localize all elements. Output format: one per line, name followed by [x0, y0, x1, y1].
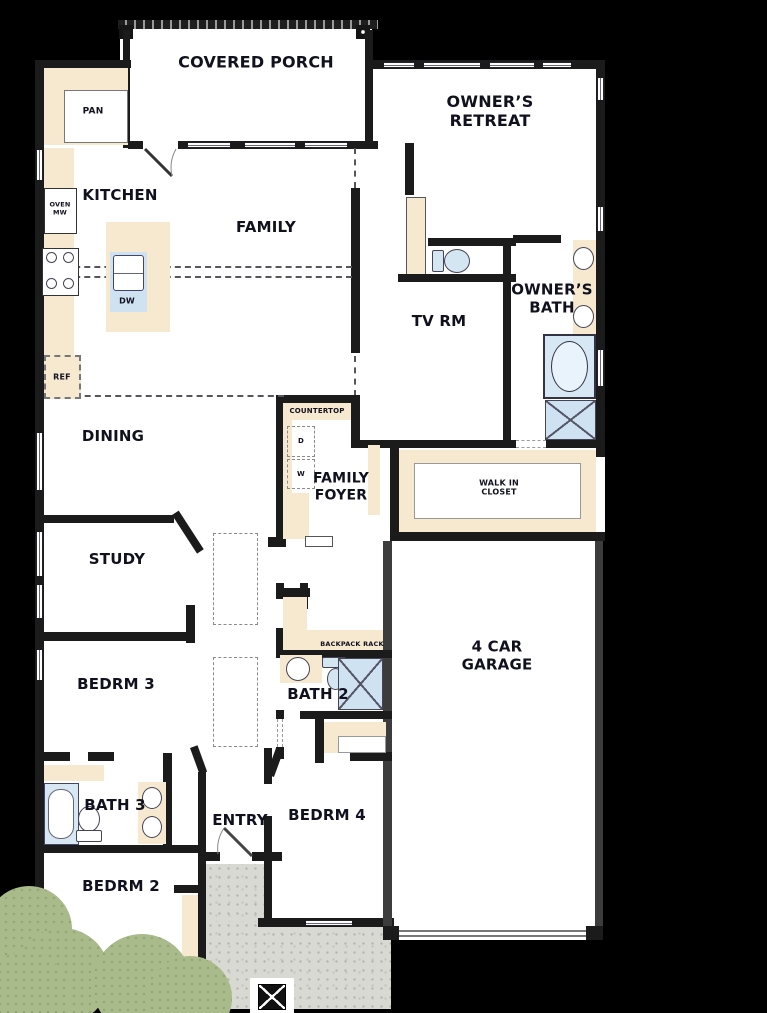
window [36, 650, 43, 680]
label-bath-2: BATH 2 [287, 686, 349, 704]
door-swing-icon [142, 146, 180, 184]
label-covered-porch: COVERED PORCH [178, 54, 334, 73]
burner-icon [46, 278, 57, 289]
label-bedrm-3: BEDRM 3 [77, 676, 155, 694]
wall-bedrm4-closet [315, 719, 324, 763]
wall-garage-corner [586, 926, 603, 940]
burner-icon [63, 252, 74, 263]
wall-bath2-bottom [300, 711, 392, 719]
wall-wic-left [390, 442, 399, 540]
wall-foyer-top [276, 395, 358, 403]
label-countertop: COUNTERTOP [289, 407, 344, 415]
bath3-shelf [44, 765, 104, 781]
wall-retreat-bath [513, 235, 561, 243]
label-owners-retreat: OWNER’S RETREAT [447, 93, 534, 131]
foyer-bench [283, 493, 309, 539]
wall-bedrm2-stub [174, 885, 198, 893]
ceiling-feature [213, 533, 258, 625]
wall-wic-top [546, 440, 605, 448]
wall-hall-right [276, 710, 284, 719]
tub-basin-icon [551, 341, 588, 392]
shower-icon [545, 400, 596, 440]
window [597, 207, 604, 231]
floor-plan: COVERED PORCH OWNER’S RETREAT KITCHEN FA… [0, 0, 767, 1013]
label-family: FAMILY [236, 219, 296, 237]
wall-counter-right [351, 395, 360, 445]
window [36, 150, 43, 180]
wall-fireplace [351, 188, 360, 353]
window [245, 142, 295, 148]
wall-bedrm3-top [40, 632, 190, 641]
cased-opening [277, 719, 283, 747]
window [36, 433, 43, 490]
porch-roof-edge [118, 20, 378, 29]
window [306, 920, 352, 926]
column-icon [258, 984, 286, 1010]
sink-icon [286, 657, 310, 681]
label-walk-in-closet: WALK IN CLOSET [479, 479, 519, 498]
burner-icon [63, 278, 74, 289]
window [36, 532, 43, 576]
wall-retreat-hall [405, 143, 414, 195]
label-garage: 4 CAR GARAGE [462, 638, 533, 673]
wall-wc-bottom [398, 274, 516, 282]
wall-bath3-bedrm2 [40, 845, 205, 853]
window [597, 350, 604, 386]
window [597, 78, 604, 100]
room-floor-garage [383, 538, 603, 940]
window [543, 62, 571, 68]
label-refrigerator: REF [53, 372, 71, 381]
label-backpack-rack: BACKPACK RACK [320, 641, 384, 649]
wall-bedrm2-right [198, 853, 206, 965]
wall-bedrm4-left [264, 816, 272, 920]
wall-right-exterior [596, 63, 605, 457]
ceiling-dash-line [44, 276, 352, 278]
label-pantry: PAN [83, 107, 104, 118]
wall-entry-left [198, 772, 206, 856]
backpack-counter [283, 597, 307, 650]
window [424, 62, 480, 68]
bedrm4-closet-floor [338, 736, 386, 753]
burner-icon [46, 252, 57, 263]
wall-bath3-top [88, 752, 114, 761]
wall-bath-tvrm [503, 246, 511, 442]
wall-hall-right [276, 747, 284, 759]
label-dining: DINING [82, 428, 144, 446]
label-bedrm-4: BEDRM 4 [288, 807, 366, 825]
wall-porch-right [365, 30, 373, 148]
label-bath-3: BATH 3 [84, 797, 146, 815]
label-tv-rm: TV RM [412, 313, 467, 331]
ceiling-feature [213, 657, 258, 747]
label-bedrm-2: BEDRM 2 [82, 878, 160, 896]
ceiling-dash-line [44, 266, 352, 268]
window [36, 585, 43, 618]
label-entry: ENTRY [212, 812, 268, 830]
label-study: STUDY [89, 551, 145, 569]
linen-closet [406, 197, 426, 277]
wall-stub [186, 605, 195, 643]
toilet-bowl-icon [444, 249, 470, 273]
passage-counter [368, 445, 380, 515]
label-owners-bath: OWNER’S BATH [511, 281, 593, 316]
ceiling-dash-line [354, 356, 356, 396]
label-washer: W [297, 470, 305, 478]
label-kitchen: KITCHEN [82, 187, 157, 205]
tub-basin-icon [48, 789, 74, 839]
wall-garage-right [595, 538, 603, 938]
label-dishwasher: DW [119, 296, 135, 305]
window [384, 62, 414, 68]
wall-bedrm4-closet [350, 752, 392, 761]
kitchen-sink-icon [113, 255, 144, 291]
label-dryer: D [298, 437, 304, 445]
wall-kitchen-top [35, 60, 131, 68]
toilet-tank-icon [432, 250, 444, 272]
wall-wic-bottom [390, 532, 605, 541]
wall-wc-top [428, 238, 516, 246]
garage-door [399, 930, 586, 937]
bedrm2-closet-shelf [182, 895, 198, 961]
toilet-tank-icon [76, 830, 102, 842]
label-oven-mw: OVEN MW [49, 201, 70, 216]
ceiling-dash-line [354, 148, 356, 188]
concrete-walkway [206, 921, 391, 1009]
label-family-foyer: FAMILY FOYER [313, 470, 369, 503]
wall-bath3-top [44, 752, 70, 761]
window [188, 142, 230, 148]
cased-opening [516, 440, 546, 448]
sink-icon [142, 816, 162, 838]
window [305, 142, 347, 148]
wall-study-top [40, 515, 174, 523]
sink-icon [573, 247, 594, 270]
foyer-cabinet [305, 536, 333, 547]
window [490, 62, 534, 68]
wall-garage-corner [383, 926, 399, 940]
